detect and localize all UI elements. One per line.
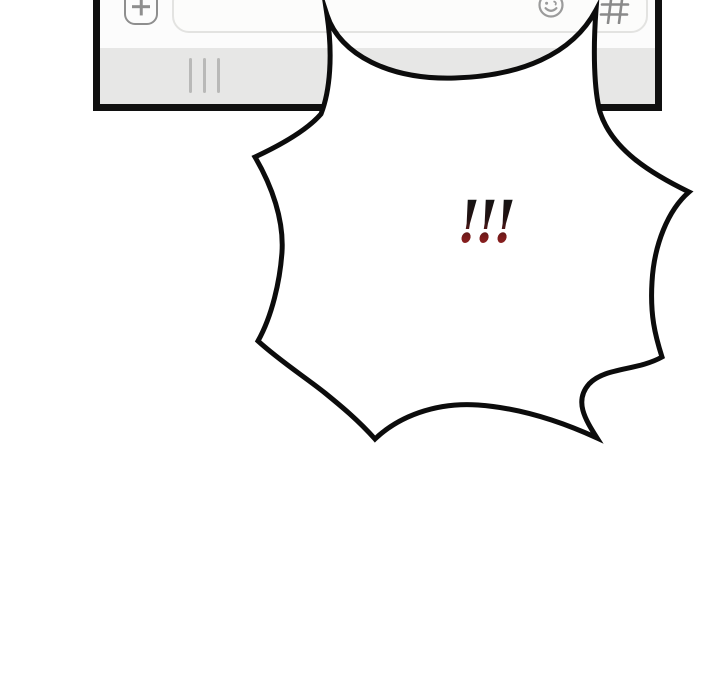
attach-button[interactable]	[124, 0, 158, 25]
comic-panel: !!!	[0, 0, 720, 700]
exclamation-text: !!!	[447, 193, 523, 257]
plus-icon	[132, 0, 150, 15]
drag-handle-icon[interactable]	[189, 58, 220, 93]
